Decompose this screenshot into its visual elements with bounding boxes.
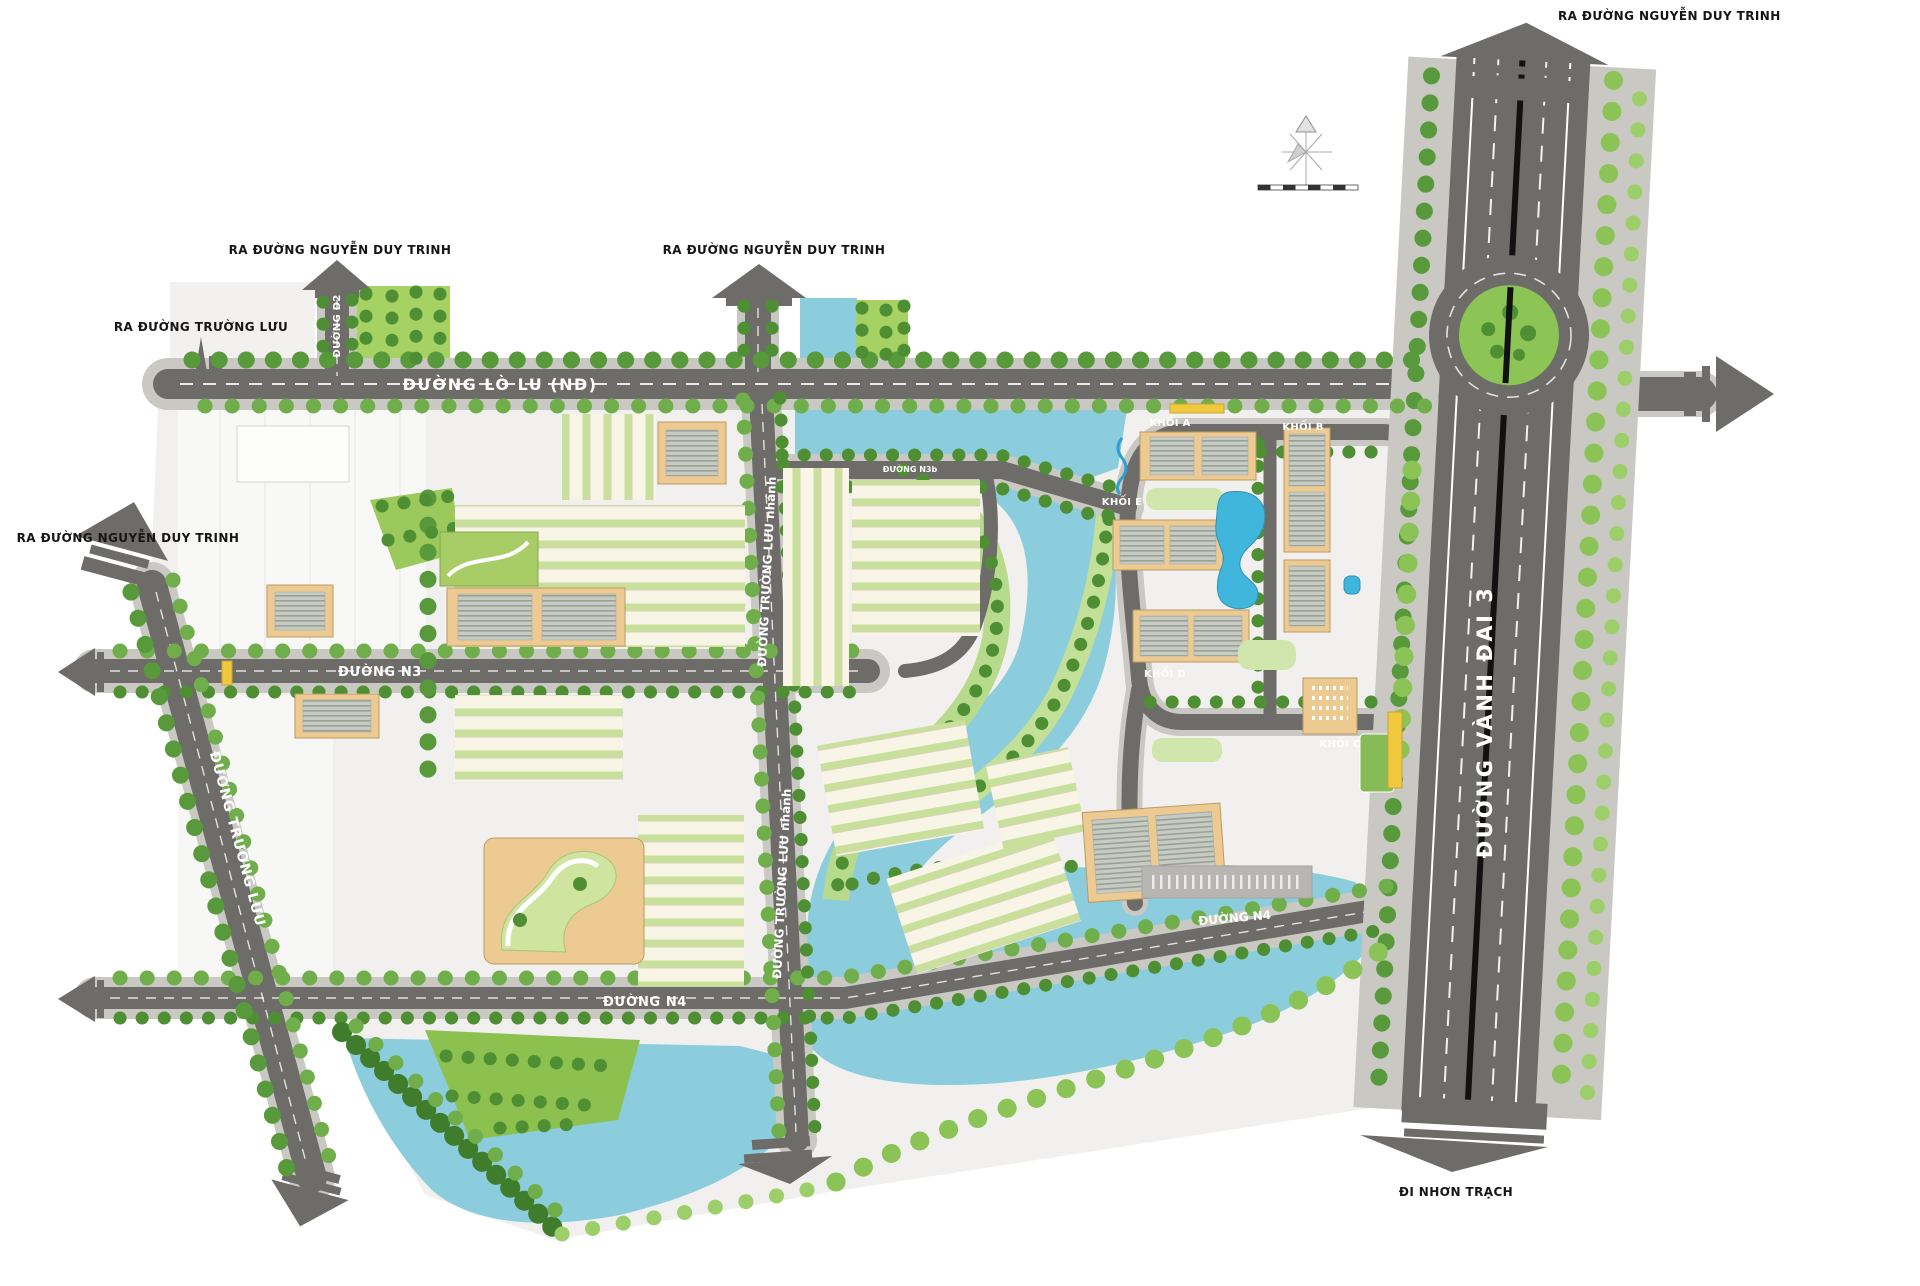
parking-lot xyxy=(1142,866,1312,898)
arrow-exit-north-icon xyxy=(712,264,806,306)
scale-bar xyxy=(1258,185,1358,190)
bus-stop-marker-west xyxy=(222,661,232,685)
label-exit-truong-luu: RA ĐƯỜNG TRƯỜNG LƯU xyxy=(114,319,288,334)
master-plan-stage: RA ĐƯỜNG NGUYỄN DUY TRINH RA ĐƯỜNG NGUYỄ… xyxy=(0,0,1920,1286)
building-mall xyxy=(484,838,644,964)
label-exit-ndt-west: RA ĐƯỜNG NGUYỄN DUY TRINH xyxy=(17,529,240,545)
arrow-truong-luu-south-icon xyxy=(261,1158,354,1237)
label-road-lo-lu: ĐƯỜNG LÒ LU (ND) xyxy=(402,375,597,394)
building-khoi-c xyxy=(1303,678,1357,734)
compass-rose-icon xyxy=(1282,116,1332,188)
label-road-n3: ĐƯỜNG N3 xyxy=(338,664,422,680)
label-road-d2: ĐƯỜNG D2 xyxy=(330,294,343,357)
label-exit-ndt-topleft: RA ĐƯỜNG NGUYỄN DUY TRINH xyxy=(229,241,452,257)
gate-marker xyxy=(1388,712,1402,788)
townhouse-fan-3 xyxy=(986,747,1086,849)
label-road-n3b: ĐƯỜNG N3b xyxy=(883,463,938,474)
townhouse-block-e1 xyxy=(783,468,849,686)
townhouse-block-w3 xyxy=(562,414,656,500)
bus-stop-marker xyxy=(1170,404,1224,413)
label-exit-ndt-topcenter: RA ĐƯỜNG NGUYỄN DUY TRINH xyxy=(663,241,886,257)
label-di-nhon-trach: ĐI NHƠN TRẠCH xyxy=(1399,1185,1513,1199)
label-road-n4-west: ĐƯỜNG N4 xyxy=(603,994,687,1010)
vanh-dai-3-corridor xyxy=(1353,17,1658,1121)
townhouse-block-s1 xyxy=(638,815,744,987)
label-exit-ndt-topright: RA ĐƯỜNG NGUYỄN DUY TRINH xyxy=(1558,7,1781,23)
townhouse-block-w2 xyxy=(455,695,623,781)
label-road-vanh-dai-3: ĐƯỜNG VÀNH ĐAI 3 xyxy=(1472,586,1497,859)
townhouse-block-e2 xyxy=(852,480,980,636)
master-plan-svg: RA ĐƯỜNG NGUYỄN DUY TRINH RA ĐƯỜNG NGUYỄ… xyxy=(0,0,1920,1286)
building-nw-plot xyxy=(237,426,349,482)
small-pool xyxy=(1344,576,1360,594)
